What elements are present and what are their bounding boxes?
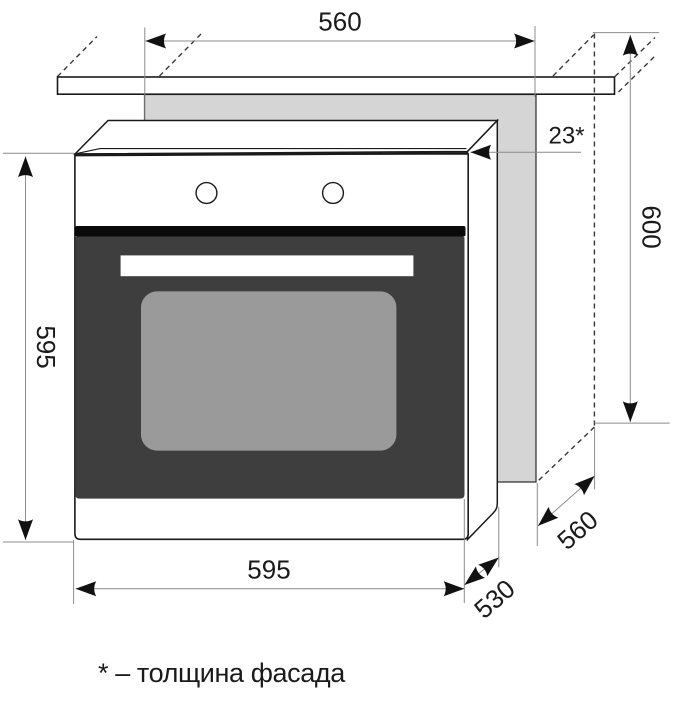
svg-text:600: 600: [637, 205, 667, 248]
svg-text:530: 530: [468, 573, 520, 624]
svg-text:23*: 23*: [549, 123, 585, 150]
svg-text:595: 595: [247, 555, 290, 585]
svg-text:560: 560: [318, 7, 361, 37]
svg-text:* – толщина фасада: * – толщина фасада: [98, 658, 346, 688]
svg-text:560: 560: [551, 505, 603, 556]
svg-text:595: 595: [31, 325, 61, 368]
